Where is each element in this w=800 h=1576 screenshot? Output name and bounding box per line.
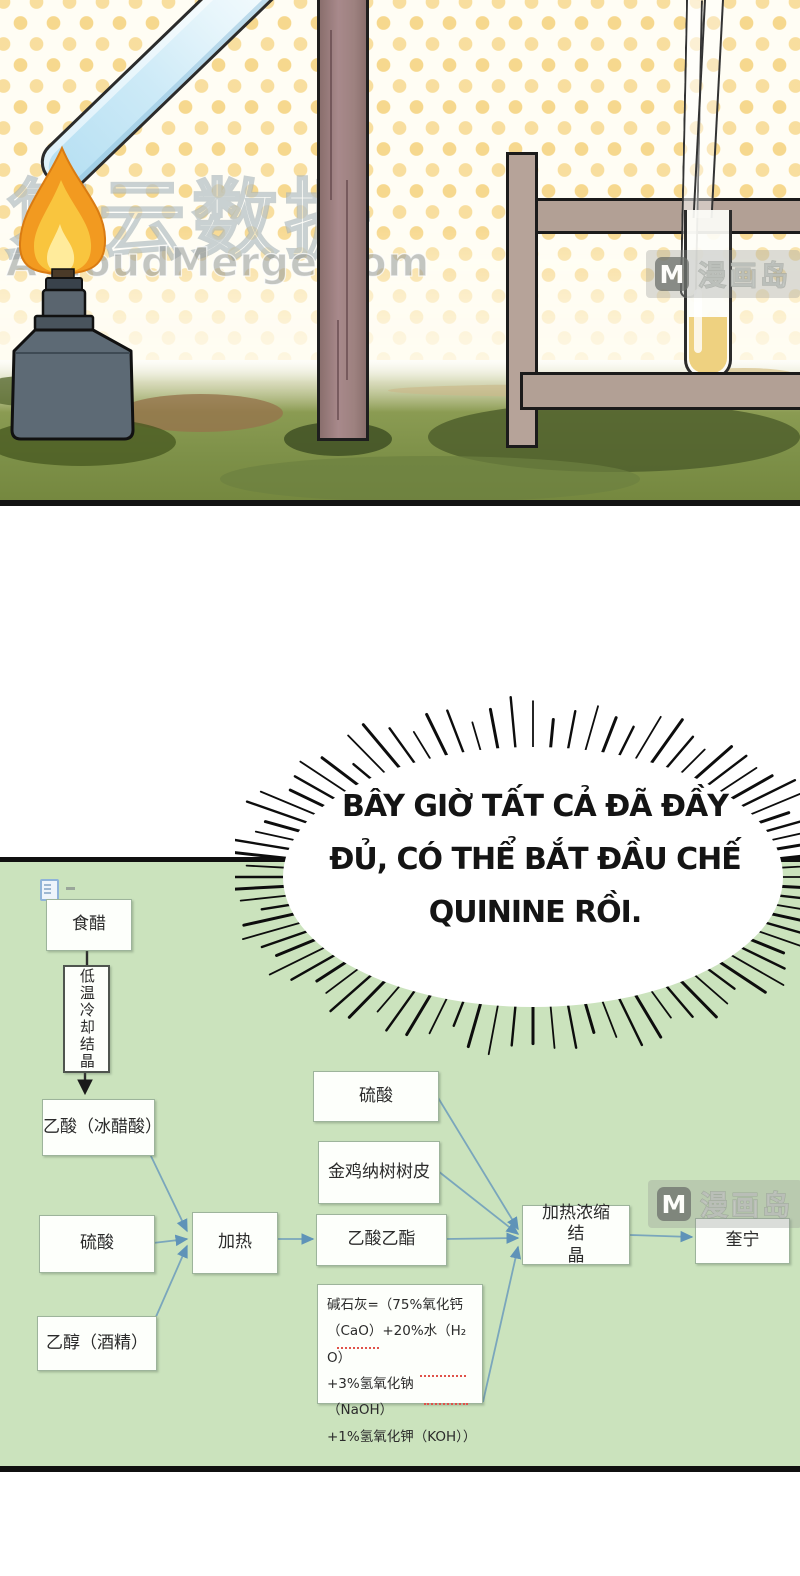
grass-tuft-band (220, 456, 640, 502)
spellcheck-underline (424, 1400, 468, 1405)
flow-box-ethanol: 乙醇（酒精） (37, 1316, 157, 1371)
speech-bubble: BÂY GIỜ TẤT CẢ ĐÃ ĐẦY ĐỦ, CÓ THỂ BẮT ĐẦU… (235, 652, 800, 1092)
lamp-collar (35, 316, 93, 330)
m-badge-icon: M (655, 257, 689, 291)
bubble-line-3: QUININE RỒI. (235, 886, 800, 939)
manhuadao-label: 漫画岛 (698, 254, 791, 294)
wood-grain (330, 30, 332, 200)
flow-box-cooling: 低温冷却结晶 (63, 965, 110, 1073)
top-panel-scene: 复云数据 ACloudMerge.com (0, 0, 800, 506)
lamp-neck (43, 290, 85, 318)
spellcheck-underline (337, 1344, 379, 1349)
lamp-body (12, 330, 133, 439)
alcohol-lamp (0, 140, 150, 450)
m-badge-icon: M (657, 1187, 691, 1221)
manhuadao-watermark-top: M 漫画岛 (646, 250, 800, 298)
flow-box-ethyl-acetate: 乙酸乙酯 (316, 1214, 447, 1266)
spellcheck-underline (420, 1372, 466, 1377)
fence-rail-bottom (520, 372, 800, 410)
bubble-line-1: BÂY GIỜ TẤT CẢ ĐÃ ĐẦY (235, 780, 800, 833)
manhuadao-watermark-flowchart: M 漫画岛 (648, 1180, 800, 1228)
flow-box-sulfuric-acid-1: 硫酸 (39, 1215, 155, 1273)
manhuadao-label: 漫画岛 (700, 1184, 793, 1224)
flow-box-vinegar: 食醋 (46, 899, 132, 951)
bubble-text: BÂY GIỜ TẤT CẢ ĐÃ ĐẦY ĐỦ, CÓ THỂ BẮT ĐẦU… (235, 780, 800, 939)
cursor-mark (66, 887, 75, 890)
fence-rail-top (506, 198, 800, 234)
paste-options-icon (40, 879, 59, 901)
flow-box-acetic-acid: 乙酸（冰醋酸） (42, 1099, 155, 1156)
comic-page: 复云数据 ACloudMerge.com (0, 0, 800, 1576)
yellow-liquid (689, 317, 727, 373)
wood-grain (337, 320, 339, 420)
wooden-post (317, 0, 369, 441)
flow-box-heat-concentrate: 加热浓缩结 晶 (522, 1205, 630, 1265)
flow-box-cinchona-bark: 金鸡纳树树皮 (318, 1141, 440, 1204)
flow-box-heat: 加热 (192, 1212, 278, 1274)
wood-grain (346, 180, 348, 380)
bubble-line-2: ĐỦ, CÓ THỂ BẮT ĐẦU CHẾ (235, 833, 800, 886)
